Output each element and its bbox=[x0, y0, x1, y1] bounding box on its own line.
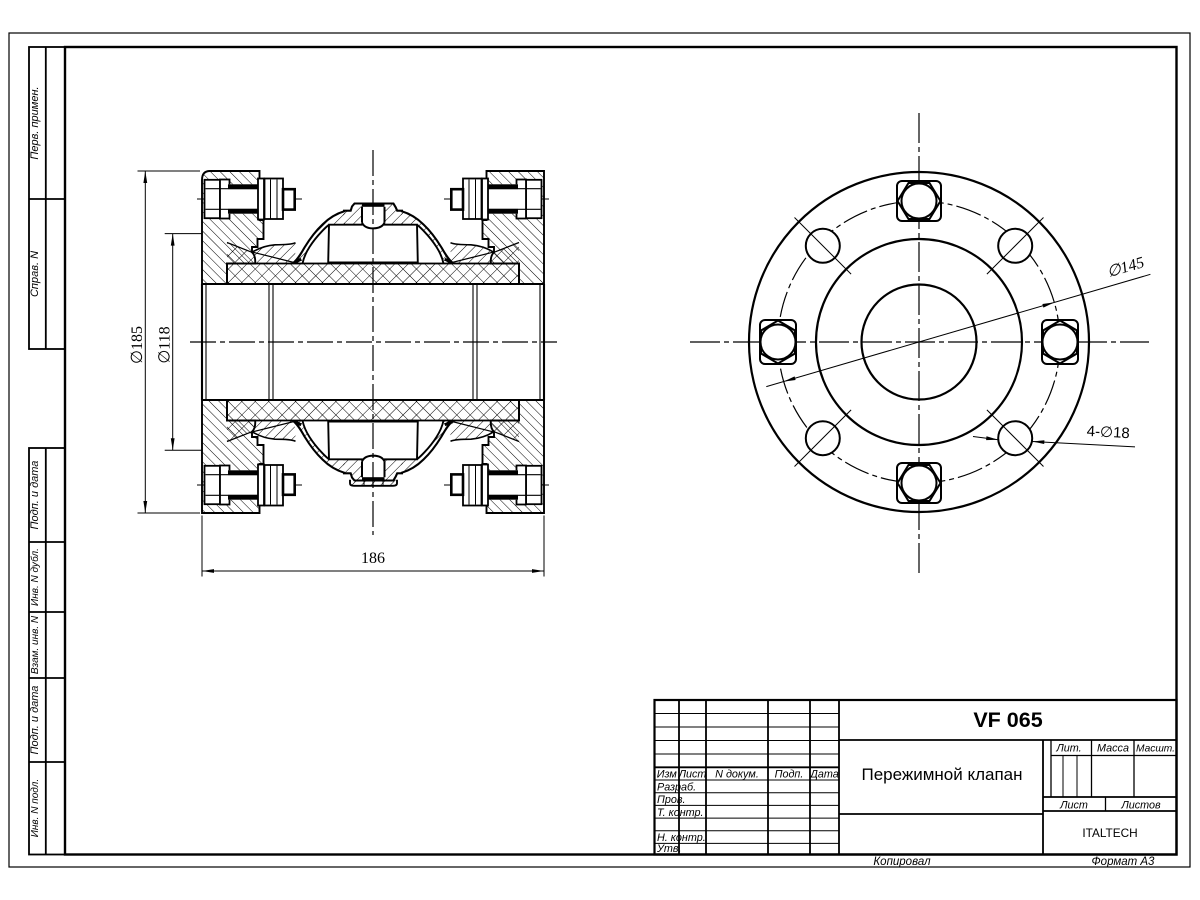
svg-text:Подп. и дата: Подп. и дата bbox=[29, 461, 41, 530]
svg-text:Изм: Изм bbox=[657, 769, 678, 781]
svg-text:Утв.: Утв. bbox=[656, 843, 682, 855]
svg-text:Инв. N подл.: Инв. N подл. bbox=[30, 779, 41, 837]
svg-text:∅185: ∅185 bbox=[129, 326, 146, 364]
svg-text:Копировал: Копировал bbox=[873, 856, 931, 868]
svg-text:ITALTECH: ITALTECH bbox=[1082, 826, 1137, 840]
svg-text:Подп.: Подп. bbox=[775, 769, 804, 781]
svg-text:Масса: Масса bbox=[1097, 743, 1129, 755]
svg-text:Дата: Дата bbox=[809, 769, 838, 781]
svg-text:Листов: Листов bbox=[1120, 799, 1161, 811]
svg-text:N докум.: N докум. bbox=[715, 769, 759, 781]
svg-text:Перв. примен.: Перв. примен. bbox=[29, 86, 41, 159]
svg-text:∅118: ∅118 bbox=[157, 326, 174, 363]
svg-text:VF 065: VF 065 bbox=[973, 708, 1042, 732]
svg-text:Пров.: Пров. bbox=[657, 794, 685, 806]
svg-text:Лист: Лист bbox=[678, 769, 707, 781]
svg-text:Пережимной клапан: Пережимной клапан bbox=[861, 765, 1022, 784]
svg-text:Инв. N дубл.: Инв. N дубл. bbox=[29, 548, 41, 606]
svg-text:Масшт.: Масшт. bbox=[1136, 744, 1175, 755]
svg-text:Лит.: Лит. bbox=[1055, 743, 1081, 755]
svg-text:186: 186 bbox=[361, 550, 385, 567]
svg-text:Лист: Лист bbox=[1059, 799, 1088, 811]
svg-text:Формат А3: Формат А3 bbox=[1092, 856, 1156, 868]
svg-text:Справ. N: Справ. N bbox=[29, 251, 41, 297]
svg-text:Взам. инв. N: Взам. инв. N bbox=[30, 615, 41, 674]
svg-text:Т. контр.: Т. контр. bbox=[657, 807, 704, 819]
svg-text:Разраб.: Разраб. bbox=[657, 781, 696, 793]
svg-text:4-∅18: 4-∅18 bbox=[1086, 423, 1130, 442]
svg-text:Подп. и дата: Подп. и дата bbox=[29, 686, 41, 755]
